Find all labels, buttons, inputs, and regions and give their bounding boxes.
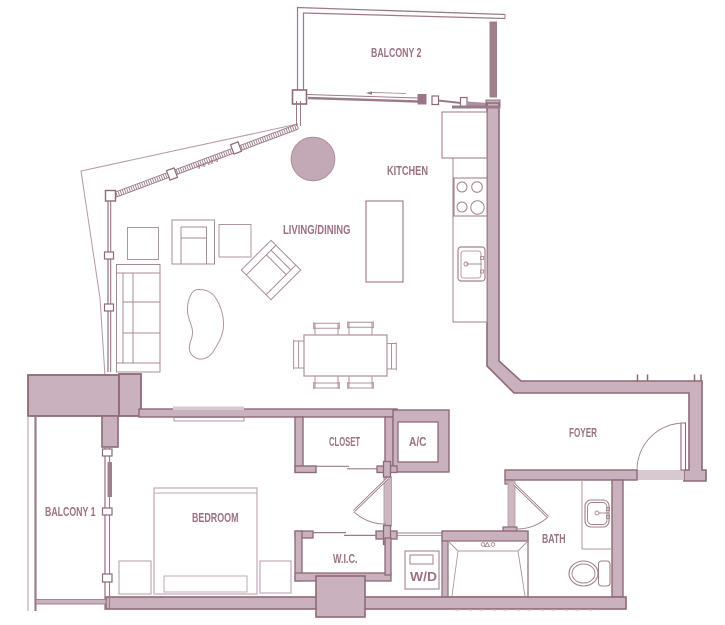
svg-text:KITCHEN: KITCHEN — [387, 163, 428, 178]
svg-text:A/C: A/C — [409, 434, 427, 449]
svg-text:BEDROOM: BEDROOM — [192, 510, 239, 525]
svg-text:W/D: W/D — [410, 569, 437, 584]
svg-text:LIVING/DINING: LIVING/DINING — [283, 222, 351, 237]
svg-text:BALCONY 1: BALCONY 1 — [45, 504, 96, 519]
svg-text:CLOSET: CLOSET — [329, 434, 360, 449]
svg-text:BATH: BATH — [542, 531, 566, 546]
svg-text:FOYER: FOYER — [569, 425, 597, 440]
svg-text:W.I.C.: W.I.C. — [333, 551, 358, 566]
svg-text:BALCONY 2: BALCONY 2 — [371, 45, 422, 60]
